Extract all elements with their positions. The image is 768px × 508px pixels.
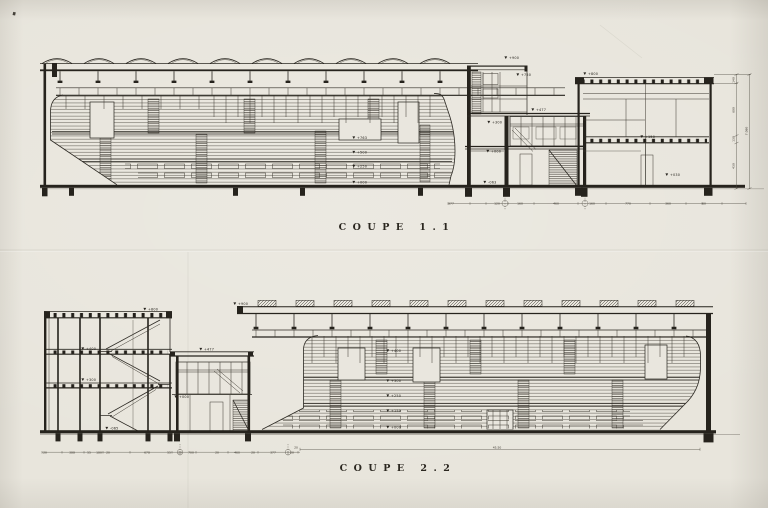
dimension-label: 678 (144, 451, 150, 455)
dimension-label: 388 (69, 451, 75, 455)
coupe-2-total-dimension-labels: 2045.50 (294, 445, 501, 449)
elevation-label: +477 (536, 108, 546, 112)
elevation-label: +750 (521, 73, 531, 77)
coupe-1-middle-building (465, 66, 590, 187)
coupe-2-dimension-labels: 2038855180206785520700204602037720 (43, 451, 294, 455)
dimension-label: 770 (625, 202, 631, 206)
dimension-label: 140 (732, 77, 736, 83)
coupe-1-right-building (575, 77, 714, 186)
dimension-label: 7.080 (745, 127, 749, 136)
drawing-sheet: +900+750+800+477+763+500+250+000+300+000… (0, 0, 768, 508)
coupe-2-dimension-strip (42, 444, 700, 456)
elevation-label: +250 (357, 165, 367, 169)
dimension-label: 20 (251, 451, 255, 455)
elevation-tick-icon (105, 427, 108, 430)
elevation-tick-icon (665, 173, 668, 176)
elevation-label: -065 (110, 427, 119, 431)
dimension-label: 55 (167, 451, 171, 455)
elevation-tick-icon (143, 308, 146, 311)
dimension-label: 160 (589, 202, 595, 206)
elevation-label: +900 (238, 302, 248, 306)
coupe-2-title: COUPE 2.2 (340, 463, 457, 474)
dimension-label: 377 (270, 451, 276, 455)
elevation-label: +477 (204, 348, 214, 352)
dimension-label: 360 (665, 202, 671, 206)
elevation-label: +000 (391, 426, 401, 430)
elevation-label: +900 (509, 56, 519, 60)
elevation-label: +800 (588, 72, 598, 76)
coupe-1-vertical-dimension-labels: 1406001304307.080 (732, 77, 749, 169)
dimension-label: 130 (732, 136, 736, 142)
coupe-2-stair-tower (44, 311, 172, 432)
coupe-1-drawing: +900+750+800+477+763+500+250+000+300+000… (40, 56, 764, 233)
paper-creases (0, 12, 768, 508)
elevation-label: +400 (86, 347, 96, 351)
elevation-tick-icon (199, 348, 202, 351)
elevation-label: +300 (391, 379, 401, 383)
elevation-label: +000 (357, 181, 367, 185)
elevation-label: +000 (179, 395, 189, 399)
elevation-label: +400 (391, 349, 401, 353)
elevation-label: +300 (86, 378, 96, 382)
dimension-label: 377 (448, 202, 454, 206)
dimension-label: 20 (106, 451, 110, 455)
elevation-label: +150 (645, 135, 655, 139)
elevation-label: -063 (488, 181, 497, 185)
dimension-label: 60 (702, 202, 706, 206)
stair-flights (100, 320, 170, 431)
dimension-label: 55 (87, 451, 91, 455)
elevation-label: +500 (357, 151, 367, 155)
dimension-label: 700 (188, 451, 194, 455)
dimension-label: 430 (732, 163, 736, 169)
coupe-1-ground (40, 185, 764, 197)
coupe-2-roof (237, 300, 713, 337)
elevation-tick-icon (504, 56, 507, 59)
dimension-label: 600 (732, 107, 736, 113)
elevation-label: +000 (491, 150, 501, 154)
dimension-label: 45.50 (493, 445, 502, 449)
elevation-label: +150 (391, 409, 401, 413)
paper-speck (13, 12, 16, 16)
elevation-label: +800 (148, 308, 158, 312)
coupe-1-grandstand (44, 64, 463, 189)
elevation-tick-icon (81, 378, 84, 381)
elevation-tick-icon (483, 181, 486, 184)
coupe-1-roof (40, 59, 478, 82)
coupe-2-ground (40, 430, 740, 442)
elevation-label: +763 (357, 136, 367, 140)
dimension-label: 460 (553, 202, 559, 206)
dimension-label: 20 (43, 451, 47, 455)
dimension-label: 20 (178, 451, 182, 455)
dimension-label: 20 (290, 451, 294, 455)
elevation-tick-icon (233, 302, 236, 305)
coupe-2-middle-building (170, 352, 254, 432)
dimension-label: 20 (215, 451, 219, 455)
coupe-2-grandstand (258, 314, 711, 433)
dimension-label: 180 (96, 451, 102, 455)
elevation-tick-icon (583, 72, 586, 75)
elevation-tick-icon (487, 121, 490, 124)
elevation-label: +250 (391, 394, 401, 398)
dimension-label: 120 (494, 202, 500, 206)
coupe-2-drawing: +900+800+400+300+477+000-065+400+300+250… (40, 300, 740, 474)
dimension-label: 460 (234, 451, 240, 455)
dimension-label: 160 (517, 202, 523, 206)
coupe-1-title: COUPE 1.1 (339, 222, 456, 233)
dimension-label: 20 (294, 445, 298, 449)
elevation-tick-icon (516, 73, 519, 76)
coupe-1-dimension-labels: 37712016046016077036060 (448, 202, 706, 206)
elevation-label: +300 (492, 121, 502, 125)
elevation-label: +030 (670, 173, 680, 177)
section-drawings-svg: +900+750+800+477+763+500+250+000+300+000… (0, 0, 768, 508)
elevation-tick-icon (531, 108, 534, 111)
